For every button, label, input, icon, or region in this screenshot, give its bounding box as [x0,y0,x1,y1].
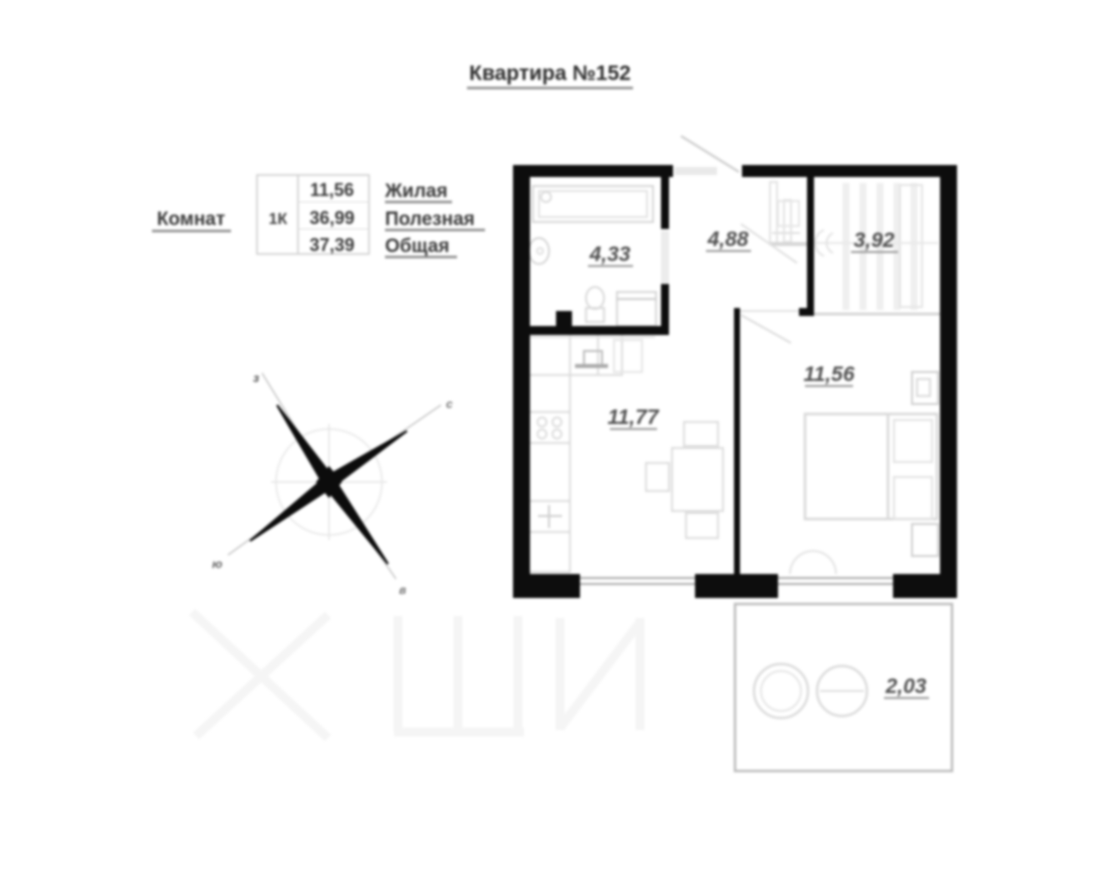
svg-text:11,56: 11,56 [310,180,354,200]
svg-text:37,39: 37,39 [309,235,354,255]
svg-text:11,56: 11,56 [804,363,855,386]
svg-text:4,88: 4,88 [707,228,749,251]
svg-text:в: в [399,583,406,597]
svg-text:ю: ю [212,557,222,571]
svg-text:1К: 1К [269,211,288,228]
svg-text:Квартира №152: Квартира №152 [469,62,631,85]
svg-text:з: з [253,371,259,385]
svg-text:с: с [446,397,453,411]
svg-text:Комнат: Комнат [157,209,225,230]
svg-text:4,33: 4,33 [589,243,631,266]
svg-text:3,92: 3,92 [854,229,895,252]
svg-text:11,77: 11,77 [608,406,660,429]
svg-text:2,03: 2,03 [885,675,927,698]
svg-text:Общая: Общая [385,236,449,257]
svg-text:Жилая: Жилая [384,181,448,202]
svg-text:Полезная: Полезная [385,209,475,230]
svg-text:36,99: 36,99 [309,208,354,228]
